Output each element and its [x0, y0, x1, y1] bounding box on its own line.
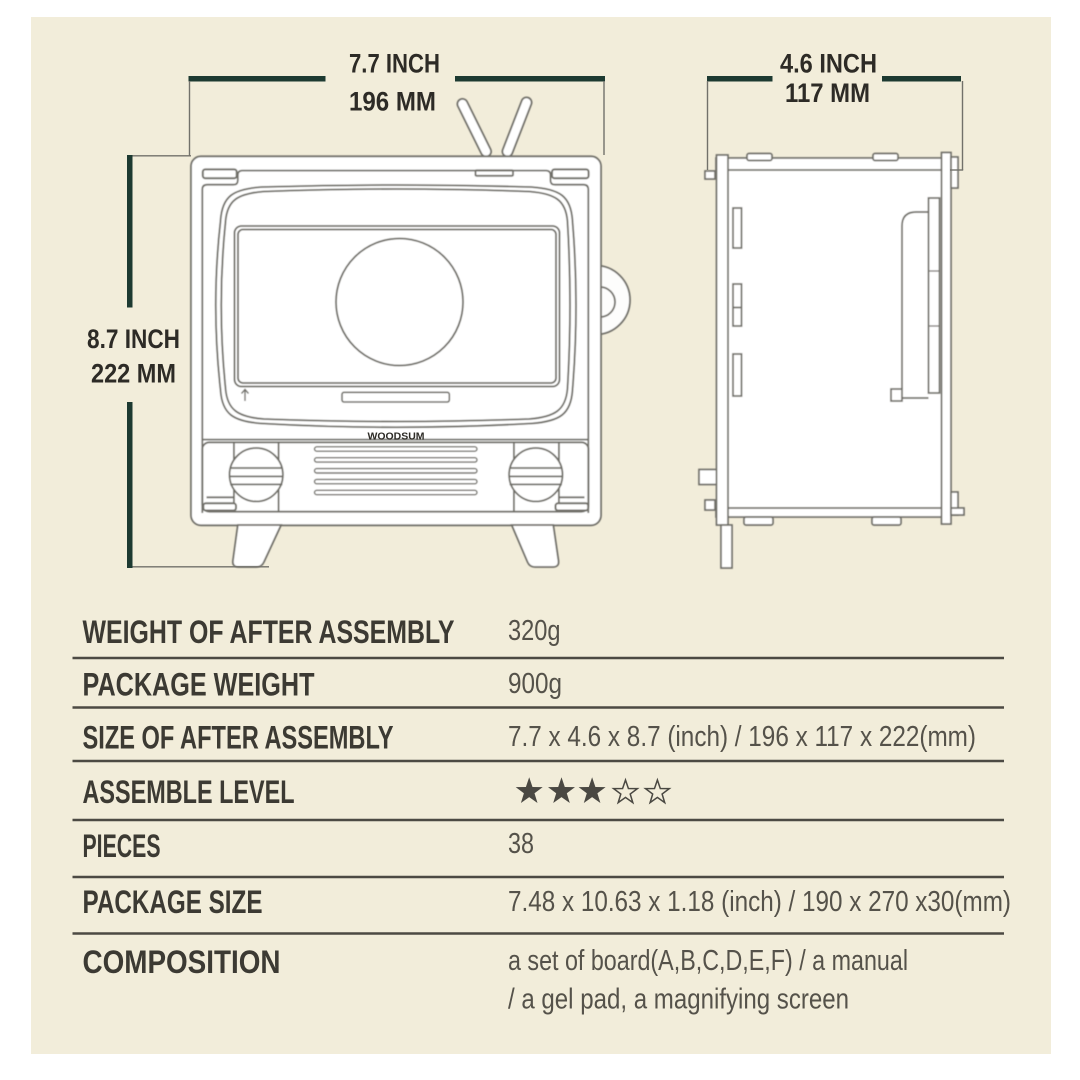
svg-text:PIECES: PIECES	[83, 828, 161, 864]
svg-text:8.7 INCH: 8.7 INCH	[87, 324, 180, 354]
svg-text:PACKAGE WEIGHT: PACKAGE WEIGHT	[83, 667, 315, 703]
svg-text:PACKAGE SIZE: PACKAGE SIZE	[83, 884, 263, 920]
svg-text:900g: 900g	[508, 668, 562, 700]
svg-text:4.6 INCH: 4.6 INCH	[780, 49, 877, 79]
svg-text:WEIGHT OF AFTER ASSEMBLY: WEIGHT OF AFTER ASSEMBLY	[83, 614, 455, 650]
svg-text:WOODSUM: WOODSUM	[368, 432, 425, 443]
svg-text:/ a gel pad, a magnifying scre: / a gel pad, a magnifying screen	[508, 984, 849, 1016]
svg-text:196 MM: 196 MM	[349, 87, 436, 117]
svg-text:7.7 INCH: 7.7 INCH	[349, 49, 440, 79]
svg-text:COMPOSITION: COMPOSITION	[83, 944, 281, 980]
svg-text:7.48 x 10.63 x 1.18 (inch) / 1: 7.48 x 10.63 x 1.18 (inch) / 190 x 270 x…	[508, 886, 1011, 918]
svg-text:320g: 320g	[508, 615, 561, 647]
svg-text:117 MM: 117 MM	[785, 78, 870, 108]
svg-text:ASSEMBLE LEVEL: ASSEMBLE LEVEL	[83, 774, 295, 810]
svg-text:38: 38	[508, 828, 534, 860]
svg-text:SIZE OF AFTER ASSEMBLY: SIZE OF AFTER ASSEMBLY	[83, 720, 394, 756]
svg-text:222 MM: 222 MM	[91, 359, 176, 389]
svg-text:a set of board(A,B,C,D,E,F) /: a set of board(A,B,C,D,E,F) / a manual	[508, 945, 908, 977]
svg-text:7.7 x 4.6 x 8.7 (inch) / 196 x: 7.7 x 4.6 x 8.7 (inch) / 196 x 117 x 222…	[508, 721, 976, 753]
